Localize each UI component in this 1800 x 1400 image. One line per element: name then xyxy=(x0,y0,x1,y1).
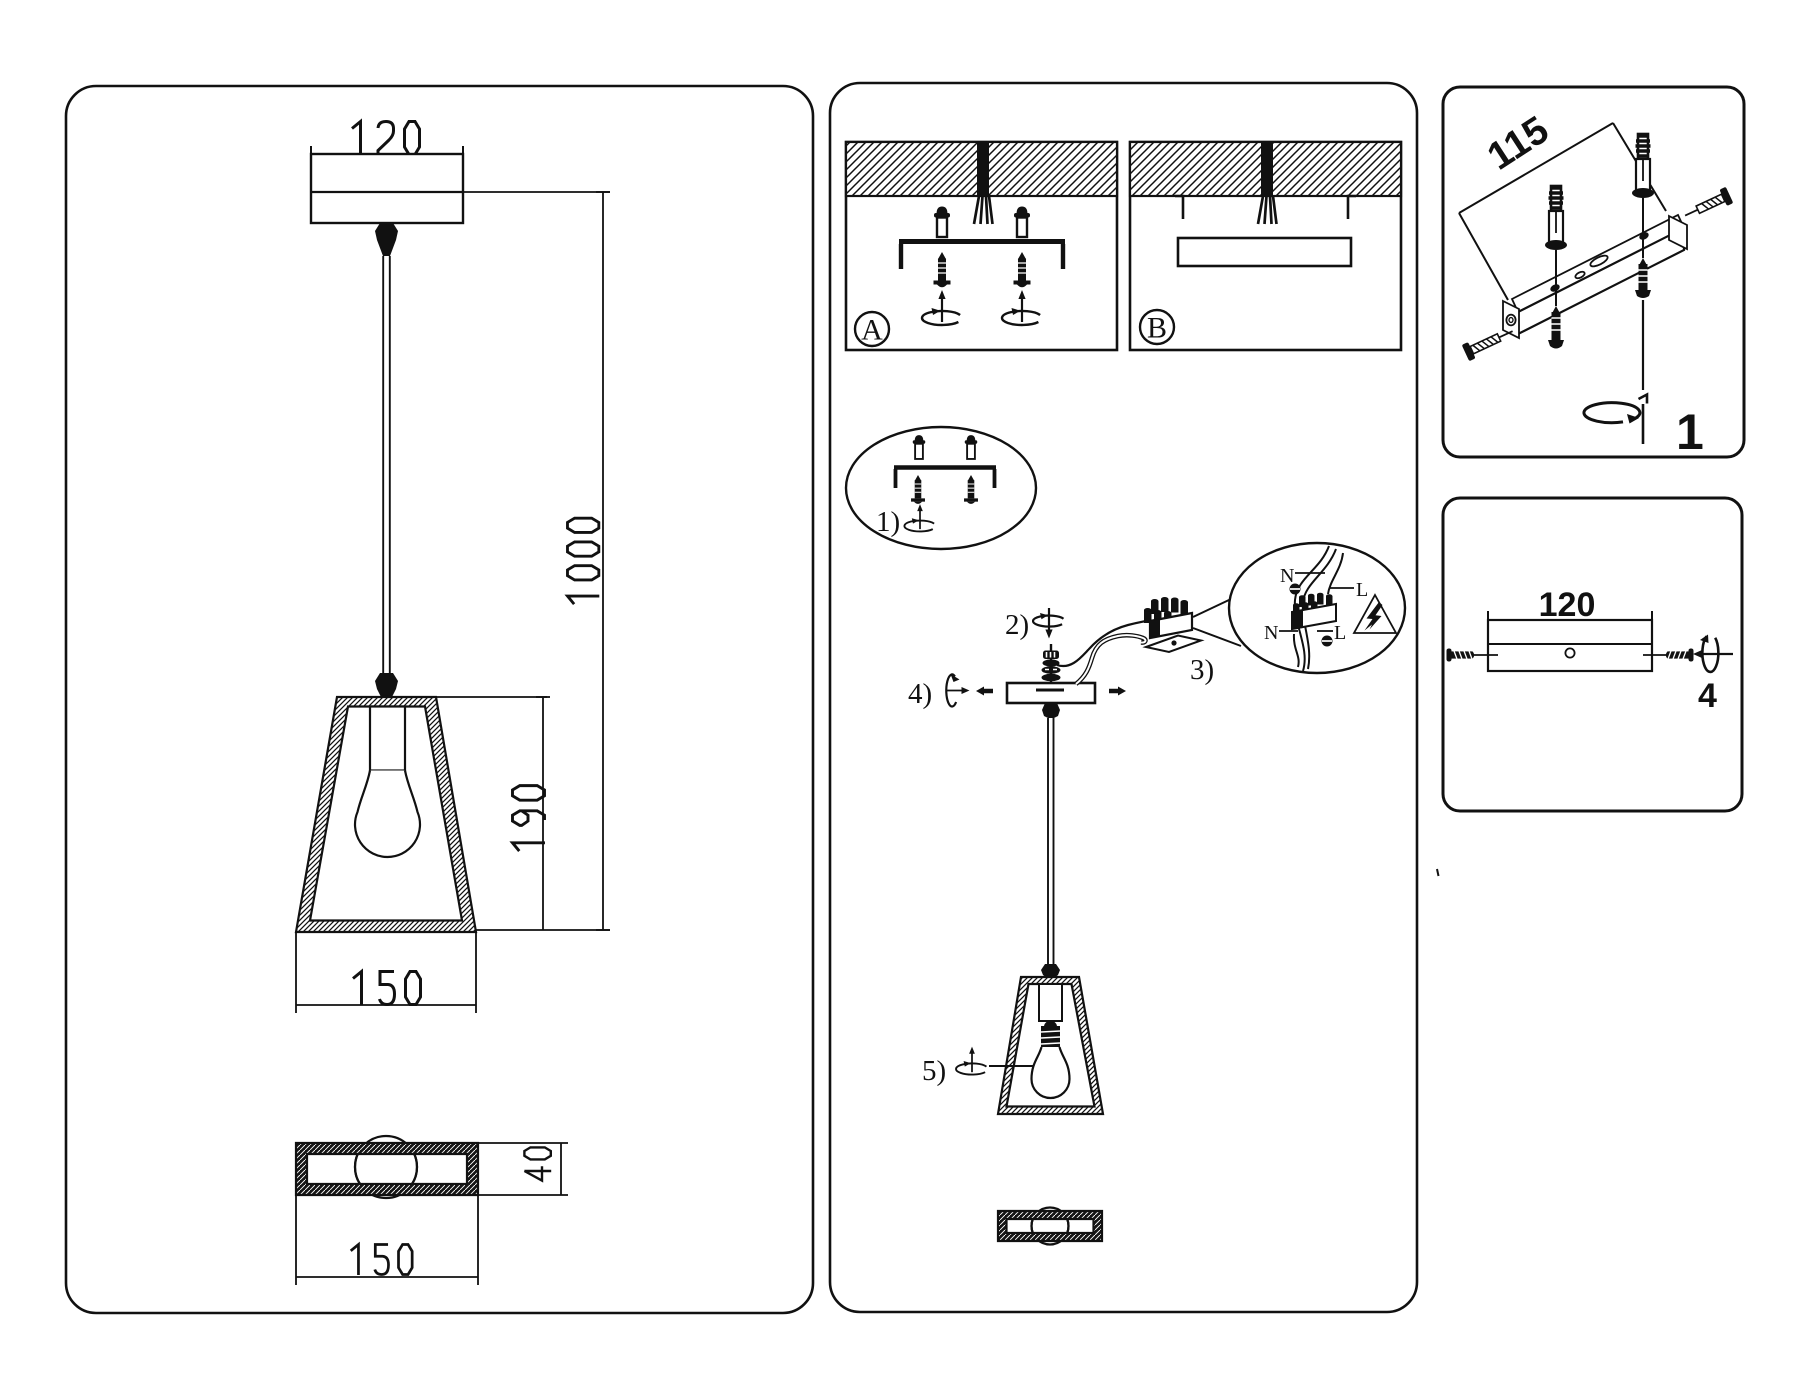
svg-text:120: 120 xyxy=(1539,586,1596,624)
svg-text:L: L xyxy=(1356,579,1368,601)
svg-text:N: N xyxy=(1264,622,1278,644)
svg-text:3): 3) xyxy=(1190,654,1214,686)
svg-text:5): 5) xyxy=(922,1055,946,1087)
svg-text:N: N xyxy=(1280,565,1294,587)
svg-text:2): 2) xyxy=(1005,609,1029,641)
svg-text:1): 1) xyxy=(876,506,900,538)
svg-text:B: B xyxy=(1147,312,1167,345)
svg-text:4): 4) xyxy=(908,678,932,710)
svg-text:L: L xyxy=(1334,622,1346,644)
svg-text:A: A xyxy=(861,314,883,347)
svg-text:1: 1 xyxy=(1676,404,1704,460)
svg-text:4: 4 xyxy=(1698,677,1717,715)
